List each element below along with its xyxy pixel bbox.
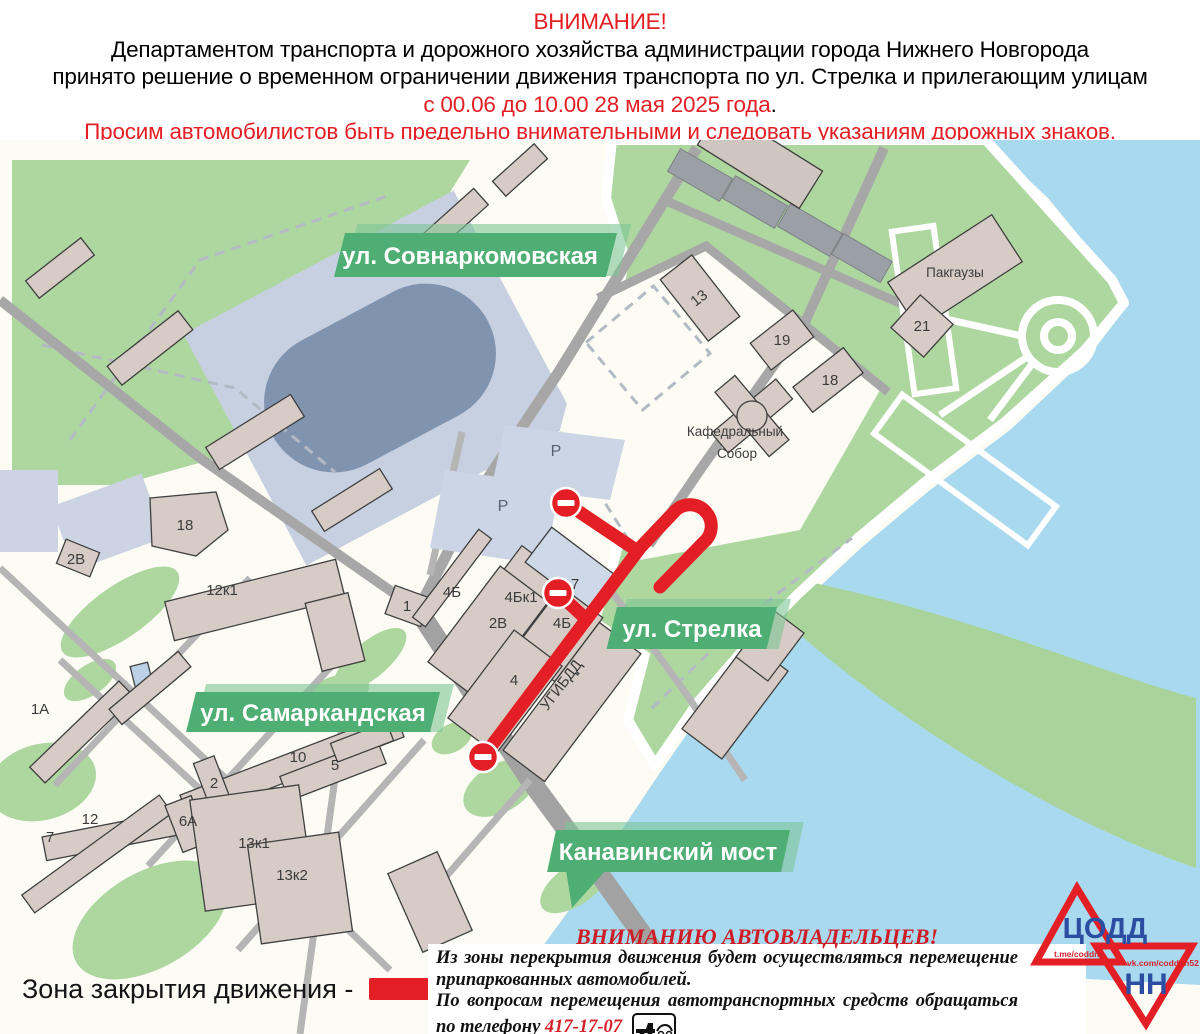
building-label-10: 10 (290, 749, 307, 766)
logo-telegram-link: t.me/coddnn (1054, 949, 1105, 959)
phone-number: 417-17-07 (545, 1017, 622, 1034)
building-label-4: 4 (510, 672, 518, 689)
header-attention: ВНИМАНИЕ! (0, 8, 1200, 36)
poster: ВНИМАНИЕ! Департаментом транспорта и дор… (0, 0, 1200, 1034)
building-label-13k1: 13к1 (238, 835, 270, 852)
building-label-1: 1 (403, 598, 411, 615)
building-label-18-left: 18 (177, 517, 194, 534)
no-entry-icon (468, 742, 498, 772)
notice-body: Из зоны перекрытия движения будет осущес… (436, 948, 1018, 1034)
header-line2: принято решение о временном ограничении … (0, 63, 1200, 91)
logo-city-text: НН (1124, 968, 1167, 1001)
notice-paragraph-2: По вопросам перемещения автотранспортных… (436, 991, 1018, 1034)
building-label-5: 5 (331, 757, 339, 774)
parking-label-1: Р (551, 443, 562, 460)
svg-text:ул. Совнаркомовская: ул. Совнаркомовская (342, 243, 598, 270)
building-label-19: 19 (774, 332, 791, 349)
logo-vk-link: vk.com/coddnn52 (1127, 958, 1199, 968)
header-dates: с 00.06 до 10.00 28 мая 2025 года. (0, 91, 1200, 119)
building-label-4bk1: 4Бк1 (504, 589, 537, 606)
logo-org-text: ЦОДД (1063, 913, 1148, 945)
cathedral-label-1: Кафедральный (687, 424, 783, 439)
no-entry-icon (551, 488, 581, 518)
header: ВНИМАНИЕ! Департаментом транспорта и дор… (0, 8, 1200, 146)
city-map: 13 19 18 21 Пакгаузы Кафедральный Собор … (0, 140, 1200, 1034)
building-label-2v-left: 2В (67, 551, 85, 568)
building-label-2: 2 (210, 775, 218, 792)
tow-truck-icon (632, 1013, 676, 1034)
svg-text:Канавинский мост: Канавинский мост (559, 839, 778, 866)
building-label-4b2: 4Б (553, 615, 571, 632)
building-label-12k1: 12к1 (206, 582, 238, 599)
pakgauzy-label: Пакгаузы (926, 265, 984, 280)
building-label-1a: 1А (31, 701, 49, 718)
building-label-4b: 4Б (443, 584, 461, 601)
parking-label-2: Р (498, 498, 509, 515)
cathedral-label-2: Собор (717, 446, 757, 461)
header-line1: Департаментом транспорта и дорожного хоз… (0, 36, 1200, 64)
building-label-18-right: 18 (822, 372, 839, 389)
notice-title: ВНИМАНИЮ АВТОВЛАДЕЛЬЦЕВ! (428, 924, 1086, 950)
building-label-12: 12 (82, 811, 99, 828)
notice-paragraph-1: Из зоны перекрытия движения будет осущес… (436, 948, 1018, 991)
svg-text:ул. Стрелка: ул. Стрелка (622, 616, 762, 643)
svg-text:ул. Самаркандская: ул. Самаркандская (200, 700, 426, 727)
street-banner-sovnarkomovskaya: ул. Совнаркомовская (334, 224, 631, 277)
no-entry-icon (543, 578, 573, 608)
building-label-13k2: 13к2 (276, 867, 308, 884)
legend-label: Зона закрытия движения - (22, 974, 353, 1005)
building-label-2v: 2В (489, 615, 507, 632)
building-label-6a: 6А (179, 813, 197, 830)
street-banner-strelka: ул. Стрелка (607, 599, 791, 649)
street-banner-samarkandskaya: ул. Самаркандская (186, 684, 454, 732)
codd-logo: ЦОДД t.me/coddnn vk.com/coddnn52 НН (1030, 876, 1200, 1034)
building-label-21: 21 (914, 318, 931, 335)
building-label-7-left: 7 (46, 829, 54, 846)
